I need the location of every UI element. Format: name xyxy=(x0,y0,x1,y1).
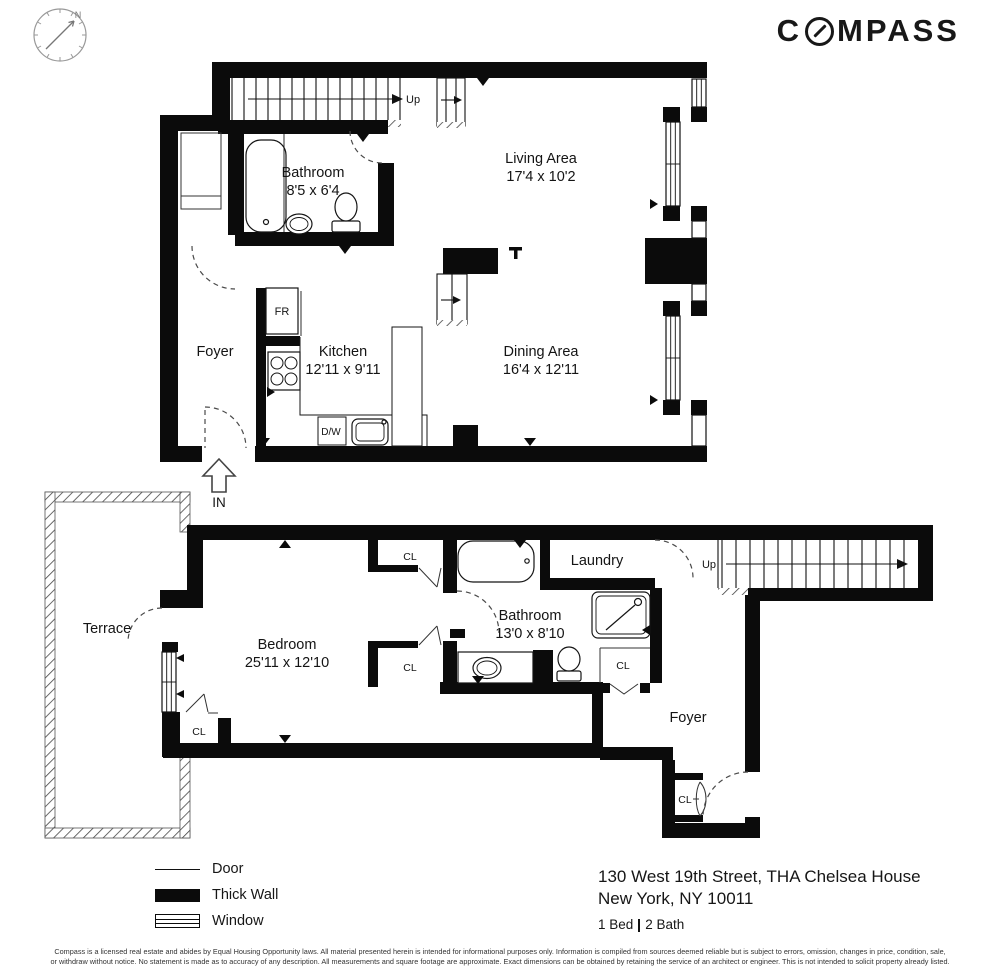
property-info: 130 West 19th Street, THA Chelsea House … xyxy=(598,866,921,936)
bedroom-label: Bedroom xyxy=(258,637,317,653)
lower-stairs-up-label: Up xyxy=(702,559,716,571)
upper-foyer-label: Foyer xyxy=(196,344,233,360)
fridge-label: FR xyxy=(275,306,290,318)
beds-baths: 1 Bed 2 Bath xyxy=(598,914,921,936)
closet-label-2: CL xyxy=(403,662,417,674)
kitchen-dims: 12'11 x 9'11 xyxy=(305,362,380,378)
door-symbol-icon xyxy=(155,869,200,870)
lower-foyer-label: Foyer xyxy=(669,710,706,726)
living-area-label: Living Area xyxy=(505,151,578,167)
dining-stair-segment xyxy=(437,274,467,326)
address-line2: New York, NY 10011 xyxy=(598,888,921,910)
shower xyxy=(592,592,650,638)
upper-stairs-up-label: Up xyxy=(406,94,420,106)
stove xyxy=(268,352,300,390)
entry-arrow-icon xyxy=(203,459,235,492)
bathroom-sink xyxy=(286,214,312,234)
closet-label-5: CL xyxy=(678,794,692,806)
toilet-lower xyxy=(557,647,581,681)
closet-label-1: CL xyxy=(403,551,417,563)
laundry-label: Laundry xyxy=(571,553,624,569)
beds-baths-divider xyxy=(638,919,640,932)
legend-window-label: Window xyxy=(212,913,264,929)
legend-door-label: Door xyxy=(212,861,243,877)
lower-floor: Up xyxy=(45,492,933,838)
terrace-label: Terrace xyxy=(83,621,131,637)
legend-item-thick-wall: Thick Wall xyxy=(155,882,278,908)
living-area-dims: 17'4 x 10'2 xyxy=(506,169,575,185)
closet-label-4: CL xyxy=(192,726,206,738)
vanity-sink xyxy=(458,652,533,683)
legend-item-door: Door xyxy=(155,856,278,882)
bedroom-window xyxy=(162,652,176,712)
upper-floor-walls xyxy=(160,62,707,462)
lower-staircase xyxy=(718,540,908,595)
floorplan-page: { "brand": { "logo_prefix": "C", "logo_s… xyxy=(0,0,1000,977)
dining-area-label: Dining Area xyxy=(504,344,580,360)
legend-item-window: Window xyxy=(155,908,278,934)
upper-floor: Up xyxy=(160,62,707,510)
disclaimer-line1: Compass is a licensed real estate and ab… xyxy=(10,947,990,957)
foyer-closet xyxy=(181,133,221,209)
address-line1: 130 West 19th Street, THA Chelsea House xyxy=(598,866,921,888)
kitchen-sink xyxy=(352,419,388,445)
lower-bathroom-label: Bathroom xyxy=(499,608,562,624)
disclaimer-line2: or withdraw without notice. No statement… xyxy=(10,957,990,967)
lower-bathroom-dims: 13'0 x 8'10 xyxy=(495,626,564,642)
dining-area-dims: 16'4 x 12'11 xyxy=(503,362,579,378)
dishwasher-label: D/W xyxy=(321,427,341,438)
window-symbol-icon xyxy=(155,914,200,928)
bathtub-lower xyxy=(458,541,534,582)
legend: Door Thick Wall Window xyxy=(155,856,278,934)
beds-count: 1 Bed xyxy=(598,914,633,936)
kitchen-label: Kitchen xyxy=(319,344,367,360)
bedroom-dims: 25'11 x 12'10 xyxy=(245,655,329,671)
upper-bathroom-dims: 8'5 x 6'4 xyxy=(286,183,339,199)
thick-wall-symbol-icon xyxy=(155,889,200,902)
fireplace-block xyxy=(645,238,707,284)
lower-floor-walls xyxy=(160,525,933,838)
bathtub xyxy=(246,140,286,232)
disclaimer: Compass is a licensed real estate and ab… xyxy=(10,947,990,967)
closet-label-3: CL xyxy=(616,660,630,672)
baths-count: 2 Bath xyxy=(645,914,684,936)
floor-plan-canvas: Up xyxy=(0,0,1000,855)
legend-thick-wall-label: Thick Wall xyxy=(212,887,278,903)
entry-in-label: IN xyxy=(212,495,226,510)
upper-bathroom-label: Bathroom xyxy=(282,165,345,181)
